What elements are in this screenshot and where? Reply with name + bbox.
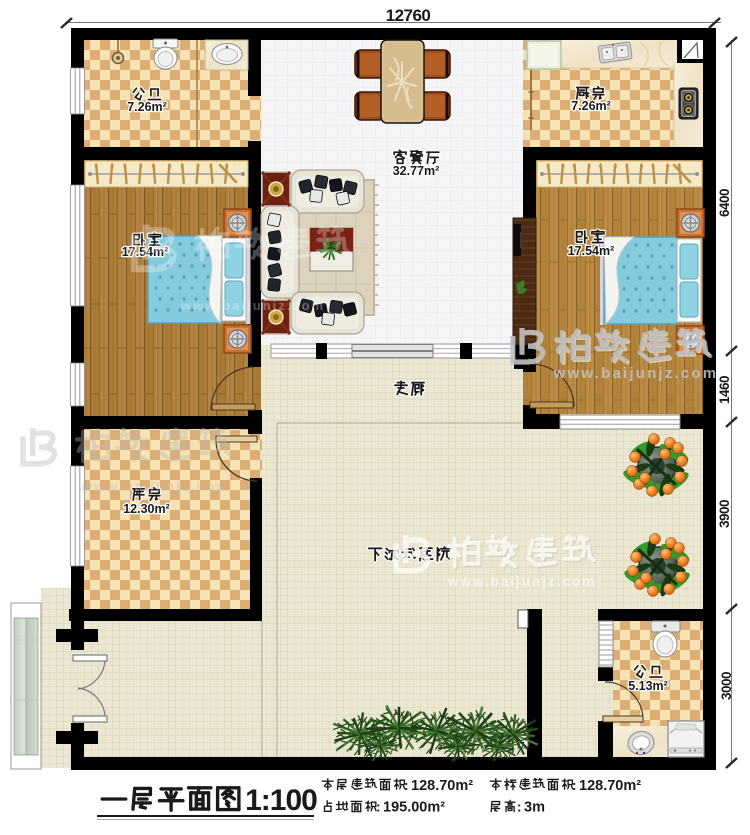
svg-text::: : xyxy=(572,778,577,793)
svg-text:3m: 3m xyxy=(524,800,545,816)
svg-text:3000: 3000 xyxy=(719,672,734,700)
svg-text:7.26m²: 7.26m² xyxy=(571,99,611,113)
svg-text:32.77m²: 32.77m² xyxy=(393,164,440,178)
svg-text:3900: 3900 xyxy=(717,500,732,528)
svg-text:www.baijunjz.com: www.baijunjz.com xyxy=(447,574,597,589)
svg-text:6400: 6400 xyxy=(717,189,732,217)
svg-text:www.baijunjz.com: www.baijunjz.com xyxy=(81,479,231,494)
svg-text:www.baijunjz.com: www.baijunjz.com xyxy=(553,365,719,382)
svg-text::: : xyxy=(376,800,381,815)
svg-text:128.70m²: 128.70m² xyxy=(411,778,473,794)
svg-text:www.baijunjz.com: www.baijunjz.com xyxy=(180,298,325,313)
svg-text:5.13m²: 5.13m² xyxy=(628,679,668,693)
svg-text:1:100: 1:100 xyxy=(245,784,317,817)
svg-text::: : xyxy=(404,778,409,793)
svg-text:1460: 1460 xyxy=(717,376,732,404)
svg-text:7.26m²: 7.26m² xyxy=(127,100,167,114)
svg-text:128.70m²: 128.70m² xyxy=(579,778,641,794)
svg-text:17.54m²: 17.54m² xyxy=(568,244,615,258)
svg-text:195.00m²: 195.00m² xyxy=(383,800,445,816)
svg-text:12760: 12760 xyxy=(386,6,431,25)
svg-text::: : xyxy=(517,800,522,815)
svg-text:12.30m²: 12.30m² xyxy=(123,502,170,516)
